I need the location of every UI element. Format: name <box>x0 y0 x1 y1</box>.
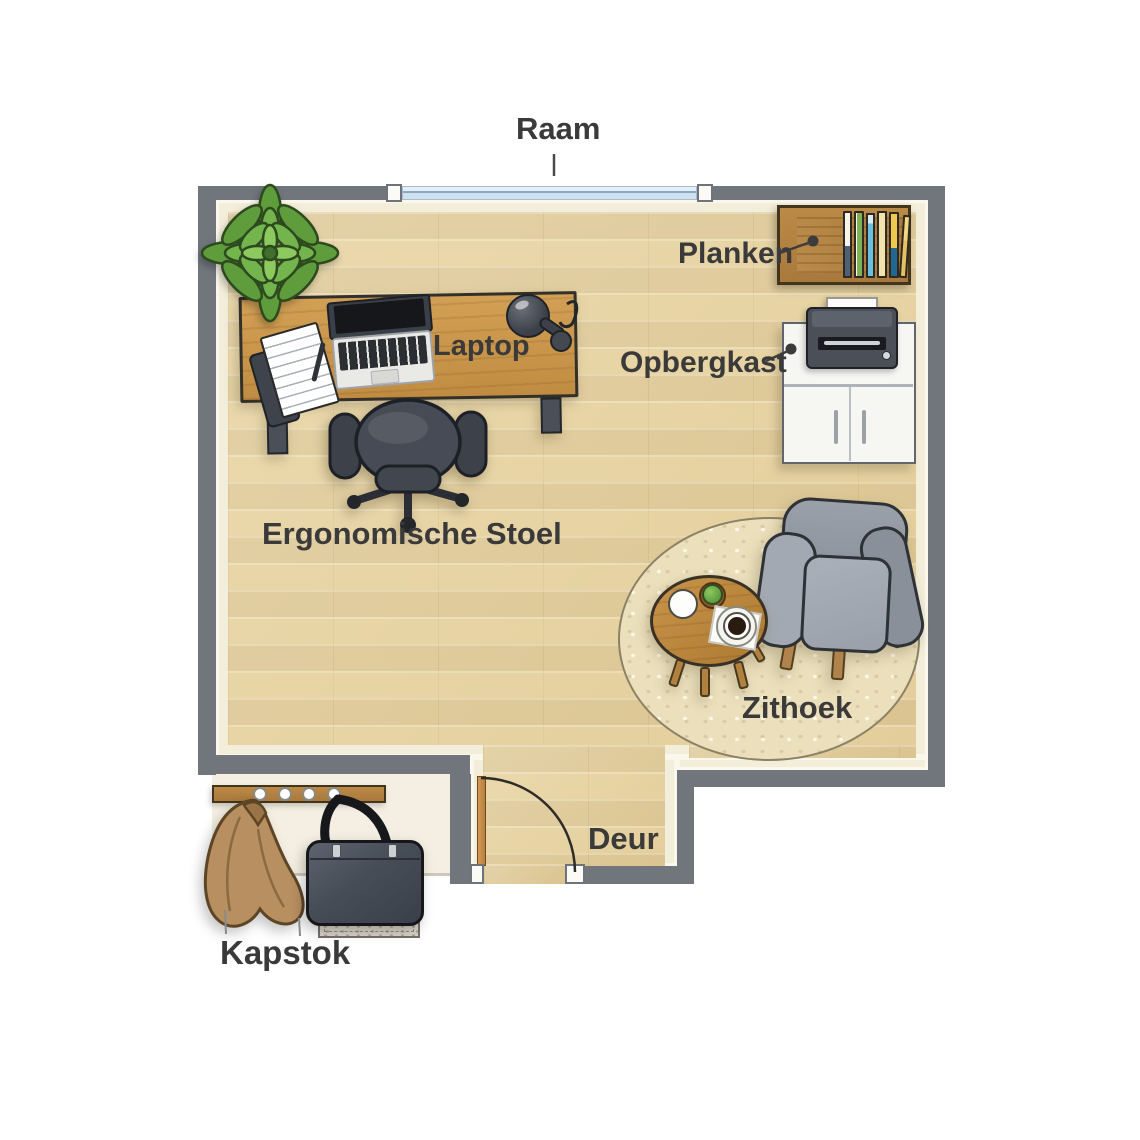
door-swing-arc <box>481 778 575 872</box>
label-storage-cabinet: Opbergkast <box>620 348 787 378</box>
label-door: Deur <box>588 823 659 854</box>
label-shelves: Planken <box>678 239 793 269</box>
label-window: Raam <box>516 113 600 144</box>
kapstok-leader-line <box>225 910 226 934</box>
planken-leader-dot <box>808 236 819 247</box>
label-coat-rack: Kapstok <box>220 936 350 969</box>
annotation-layer <box>0 0 1140 1140</box>
lamp-cable <box>560 302 577 327</box>
label-laptop: Laptop <box>433 332 530 361</box>
opbergkast-leader-dot <box>786 344 797 355</box>
label-ergonomic-chair: Ergonomische Stoel <box>262 518 562 549</box>
floor-plan: Raam Planken Opbergkast Laptop Ergonomis… <box>0 0 1140 1140</box>
label-sitting-area: Zithoek <box>742 692 852 723</box>
